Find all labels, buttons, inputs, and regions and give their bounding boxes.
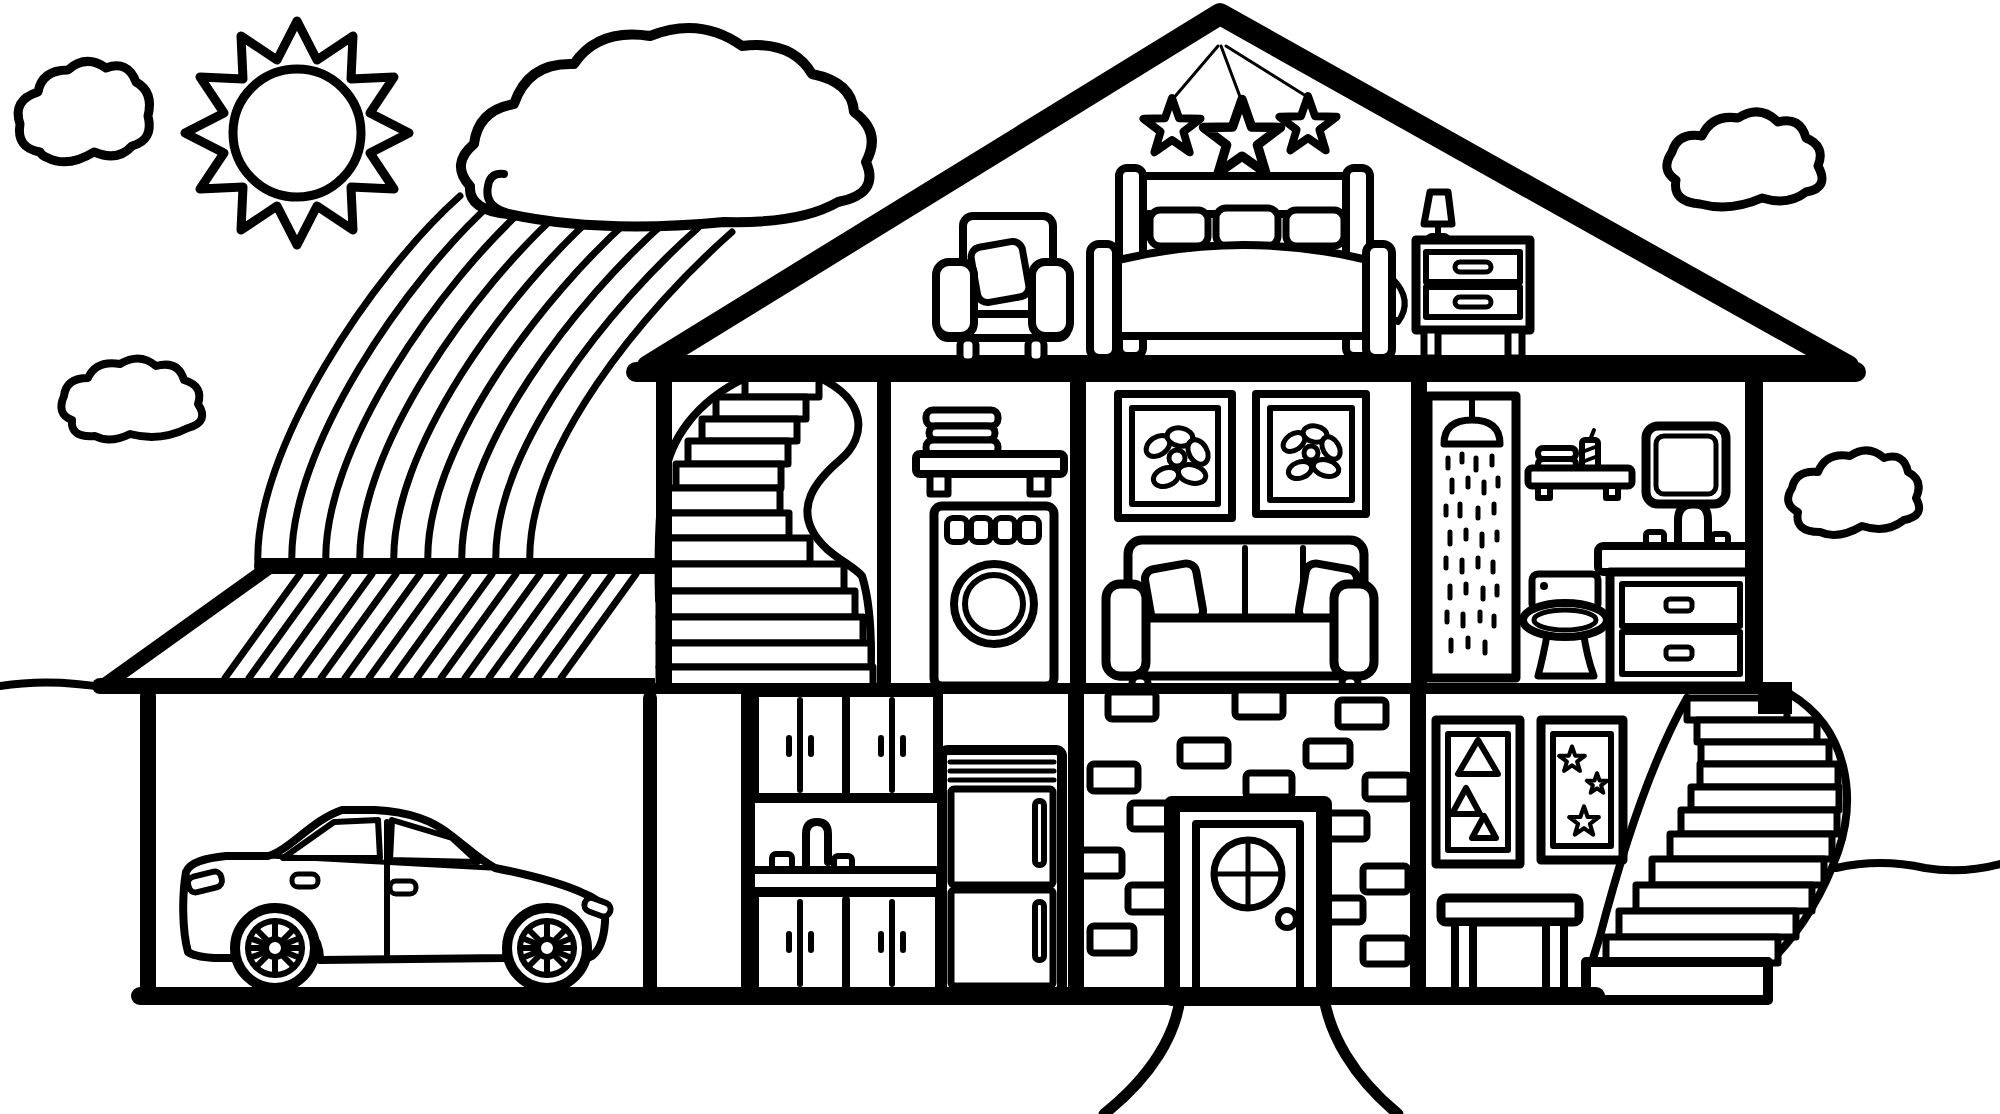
cloud-right-middle-icon [1788, 450, 1919, 534]
flower-picture-frame [1256, 394, 1366, 514]
walkway-line [1104, 998, 1180, 1114]
shower [1428, 396, 1516, 678]
front-door [1172, 804, 1324, 998]
ground-line-right [1836, 863, 2000, 870]
cloud-top-right-icon [1667, 112, 1822, 207]
triangle-picture-frame [1436, 720, 1520, 864]
star-picture-frame [1541, 720, 1623, 860]
ground-floor [140, 690, 1770, 998]
ground-line-left [0, 682, 108, 688]
dollhouse-scene [0, 0, 2000, 1114]
flower-picture-frame [1118, 394, 1232, 518]
sun-icon [185, 21, 409, 245]
walkway-line [1324, 998, 1398, 1114]
lamp-icon [1424, 192, 1452, 224]
wheel-icon [235, 908, 315, 988]
coloring-page [0, 0, 2000, 1114]
mirror [1646, 426, 1726, 504]
sofa [1106, 540, 1374, 702]
shower-head-icon [1444, 420, 1500, 444]
cloud-large-icon [461, 28, 872, 227]
doorknob-icon [1278, 910, 1296, 928]
refrigerator [942, 750, 1062, 992]
lower-cabinets [754, 892, 940, 992]
washing-machine [934, 506, 1054, 686]
cloud-top-left-icon [18, 61, 149, 161]
bed [1090, 168, 1405, 358]
cloud-left-middle-icon [61, 358, 202, 439]
laundry-room [916, 410, 1064, 686]
wheel-icon [507, 908, 587, 988]
second-floor [636, 370, 1856, 702]
upper-cabinets [754, 692, 938, 798]
garage-roof [100, 566, 658, 686]
